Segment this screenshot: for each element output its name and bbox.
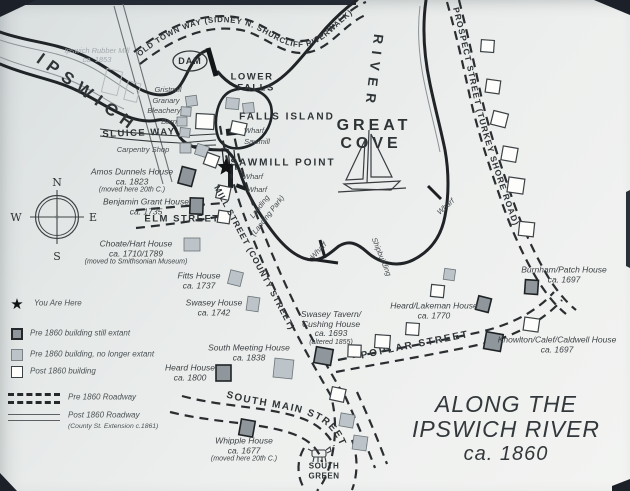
house-label-choate-hart: Choate/Hart House ca. 1710/1789 (moved t… [85,240,188,267]
cow-sketch [308,447,331,462]
house-date: ca. 1697 [521,275,607,285]
house-label-knowlton: Knowlton/Calef/Caldwell House ca. 1697 [498,335,617,354]
legend-pre-road-swatch [8,393,60,396]
legend-post-road: Post 1860 Roadway [68,412,140,421]
legend-post-swatch [11,366,23,378]
south-green-label-2: GREEN [309,473,340,482]
legend-extant: Pre 1860 building still extant [30,330,130,339]
heard-lakeman-marker [475,296,491,313]
wharf-label-a: Wharf [243,173,263,181]
legend-you-are-here: You Are Here [34,300,82,309]
house-label-amos-dunnels: Amos Dunnels House ca. 1823 (moved here … [91,168,173,195]
compass-s: S [53,250,61,263]
house-date: ca. 1770 [390,311,477,321]
south-green-label-1: SOUTH [309,463,340,472]
house-date: ca. 1697 [498,345,617,355]
house-date: ca. 1710/1789 [85,249,188,259]
falls-island-label: FALLS ISLAND [239,111,335,122]
county-south-road [345,396,375,468]
amos-dunnels-marker [178,166,196,186]
swasey-house-marker [246,296,260,312]
title-line-3: ca. 1860 [398,443,614,465]
house-label-burnham-patch: Burnham/Patch House ca. 1697 [521,265,607,284]
house-date: ca. 1742 [186,308,243,318]
heard-house-marker [216,365,231,381]
wharf-label-falls: Wharf [244,127,264,135]
legend-pre-road: Pre 1860 Roadway [68,394,136,403]
house-label-swasey-house: Swasey House ca. 1742 [186,298,243,317]
sawmill-point-label: SAWMILL POINT [230,157,335,168]
legend-post-road-swatch [8,420,60,421]
dam-structure [208,48,216,76]
house-date: ca. 1737 [178,281,221,291]
benjamin-grant-marker [190,198,204,214]
legend-pre-road-swatch [8,401,60,404]
house-label-south-meeting: South Meeting House ca. 1838 [208,343,290,362]
historic-map: OLD TOWN WAY (SIDNEY N. SHURCLIFF RIVERW… [0,0,630,491]
house-name: Swasey Tavern/ Cushing House [298,310,364,329]
house-note: (moved here 20th C.) [91,187,173,195]
compass-n: N [52,176,62,189]
house-label-benjamin-grant: Benjamin Grant House ca. 1735 [103,197,189,216]
lower-falls-label-2: FALLS [237,84,275,95]
svg-text:OLD TOWN WAY (SIDNEY N. SHURCL: OLD TOWN WAY (SIDNEY N. SHURCLIFF RIVERW… [135,8,354,58]
south-green-arc [298,448,305,490]
legend-gone: Pre 1860 building, no longer extant [30,351,154,360]
house-date: ca. 1800 [165,373,215,383]
legend-extant-swatch [11,328,23,340]
house-date: ca. 1677 [211,446,277,456]
sawmill-site-label: Sawmill [244,138,270,146]
house-note: (moved to Smithsonian Museum) [85,259,188,267]
gristmill-label: Gristmill [154,86,181,94]
bleachery-label: Bleachery [147,107,180,115]
house-note: (moved here 20th C.) [211,456,277,464]
swasey-tavern-marker [314,347,334,366]
fitts-marker [227,270,243,287]
barn-label: Barn [161,118,177,126]
house-date: ca. 1838 [208,353,290,363]
whipple-marker [239,419,256,437]
legend-post-road-note: (County St. Extension c.1861) [68,423,158,431]
house-label-fitts: Fitts House ca. 1737 [178,271,221,290]
legend-gone-swatch [11,349,23,361]
old-town-way-label: OLD TOWN WAY (SIDNEY N. SHURCLIFF RIVERW… [135,8,354,58]
legend-post: Post 1860 building [30,368,96,377]
granary-label: Granary [152,97,179,105]
dam-label: DAM [178,56,202,66]
house-note: (altered 1855) [298,338,364,346]
title-line-1: ALONG THE [398,392,614,417]
compass-e: E [89,211,97,224]
great-cove-label-1: GREAT [337,117,412,135]
you-are-here-legend-icon: ★ [10,295,23,313]
rubber-mill-label-2: ca. 1853 [83,56,112,64]
house-date: ca. 1823 [91,177,173,187]
carpentry-shop-label: Carpentry Shop [117,146,170,154]
compass-w: W [10,211,22,224]
title-line-2: IPSWICH RIVER [398,417,614,442]
map-title: ALONG THE IPSWICH RIVER ca. 1860 [398,392,614,465]
legend-post-road-swatch [8,414,60,415]
house-label-whipple: Whipple House ca. 1677 (moved here 20th … [211,437,277,464]
house-date: ca. 1735 [103,207,189,217]
house-label-heard-lakeman: Heard/Lakeman House ca. 1770 [390,301,477,320]
house-date: ca. 1693 [298,329,364,339]
great-cove-label-2: COVE [340,135,401,153]
house-label-heard-house: Heard House ca. 1800 [165,363,215,382]
house-label-swasey-tavern: Swasey Tavern/ Cushing House ca. 1693 (a… [298,310,364,346]
